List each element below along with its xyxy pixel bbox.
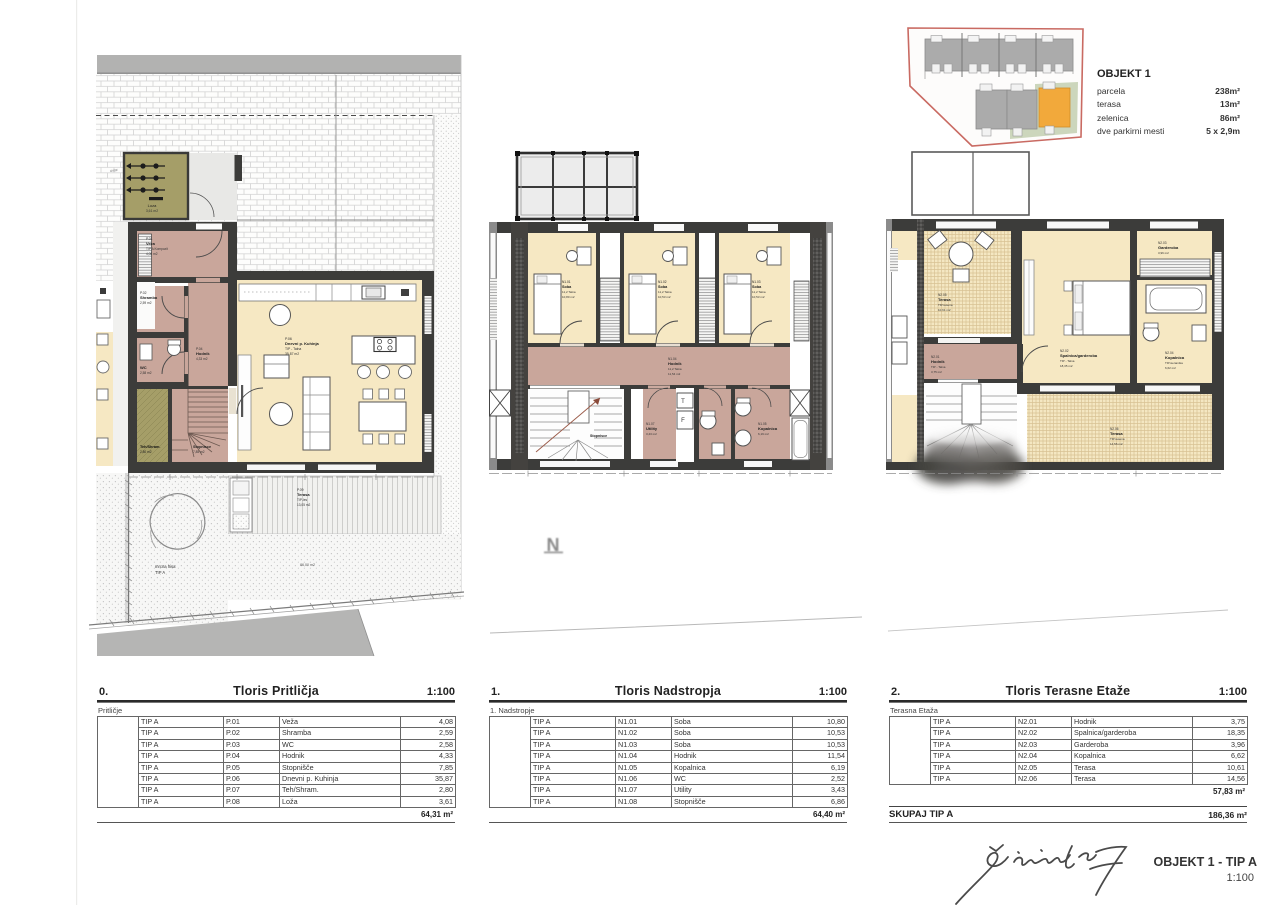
svg-text:T: T: [681, 399, 685, 405]
svg-text:TIP - Talna: TIP - Talna: [1060, 359, 1075, 363]
svg-text:F: F: [681, 418, 685, 424]
svg-text:3,75 m2: 3,75 m2: [931, 370, 942, 374]
svg-text:4,08 m2: 4,08 m2: [146, 252, 158, 256]
svg-text:N1.01: N1.01: [562, 280, 571, 284]
svg-text:14,56 m2: 14,56 m2: [1110, 442, 1123, 446]
svg-text:Teh/Shram.: Teh/Shram.: [140, 445, 160, 449]
svg-text:Soba: Soba: [658, 285, 668, 289]
svg-text:Kopalnica: Kopalnica: [758, 426, 778, 431]
svg-text:11,54 m2: 11,54 m2: [668, 372, 681, 376]
svg-text:Stopnisce: Stopnisce: [590, 434, 607, 438]
svg-text:6,19 m2: 6,19 m2: [758, 432, 769, 436]
svg-text:mrcna hisa: mrcna hisa: [155, 564, 176, 569]
svg-text:Hodnik: Hodnik: [668, 361, 682, 366]
svg-text:10,53 m2: 10,53 m2: [658, 295, 671, 299]
svg-text:Garderoba: Garderoba: [1158, 245, 1179, 250]
svg-text:4,33 m2: 4,33 m2: [196, 357, 208, 361]
svg-text:35,87 m2: 35,87 m2: [285, 352, 299, 356]
svg-text:2,58 m2: 2,58 m2: [140, 371, 152, 375]
svg-text:11,2 Talna: 11,2 Talna: [658, 290, 672, 294]
svg-text:Loza: Loza: [148, 203, 157, 208]
svg-text:Terasa: Terasa: [297, 492, 310, 497]
svg-text:3,96 m2: 3,96 m2: [1158, 251, 1169, 255]
svg-text:Spalnica/garderoba: Spalnica/garderoba: [1060, 353, 1098, 358]
svg-text:10,53 m2: 10,53 m2: [752, 295, 765, 299]
svg-text:TIP-les: TIP-les: [297, 498, 308, 502]
svg-text:2,59 m2: 2,59 m2: [140, 301, 152, 305]
svg-text:N1.03: N1.03: [752, 280, 761, 284]
svg-text:7,85 m2: 7,85 m2: [193, 450, 205, 454]
svg-text:N1.02: N1.02: [658, 280, 667, 284]
svg-text:Terasa: Terasa: [1110, 431, 1123, 436]
svg-text:Veza: Veza: [146, 241, 156, 246]
svg-text:WC: WC: [140, 365, 147, 370]
svg-text:86,00 m2: 86,00 m2: [300, 563, 315, 567]
svg-text:11,2 Talna: 11,2 Talna: [668, 367, 682, 371]
svg-text:11,2 Talna: 11,2 Talna: [562, 290, 576, 294]
svg-text:3,61 m2: 3,61 m2: [146, 209, 158, 213]
svg-text:TIP A: TIP A: [155, 570, 165, 575]
svg-text:TIP-keramika: TIP-keramika: [1165, 361, 1183, 365]
svg-text:6,62 m2: 6,62 m2: [1165, 366, 1176, 370]
svg-text:13,05 m2: 13,05 m2: [297, 503, 311, 507]
svg-text:18,35 m2: 18,35 m2: [1060, 364, 1073, 368]
svg-text:Hodnik: Hodnik: [196, 351, 210, 356]
svg-text:TIP - Talna: TIP - Talna: [285, 347, 301, 351]
svg-text:TIP - Talna: TIP - Talna: [931, 365, 946, 369]
svg-text:Soba: Soba: [562, 285, 572, 289]
svg-text:11,2 Talna: 11,2 Talna: [752, 290, 766, 294]
svg-text:10,61 m2: 10,61 m2: [938, 308, 951, 312]
svg-text:TIP-lesena: TIP-lesena: [938, 303, 953, 307]
svg-text:TIP-lesena: TIP-lesena: [1110, 437, 1125, 441]
svg-text:Soba: Soba: [752, 285, 762, 289]
svg-text:Terasa: Terasa: [938, 297, 951, 302]
svg-text:10,80 m2: 10,80 m2: [562, 295, 575, 299]
svg-text:TIP A Kompozit: TIP A Kompozit: [146, 247, 168, 251]
svg-text:Utility: Utility: [646, 426, 658, 431]
svg-text:3,43 m2: 3,43 m2: [646, 432, 657, 436]
svg-text:Shramba: Shramba: [140, 295, 158, 300]
svg-text:Kopalnica: Kopalnica: [1165, 355, 1185, 360]
svg-text:2,80 m2: 2,80 m2: [140, 450, 152, 454]
svg-text:Dnevni p. Kuhinja: Dnevni p. Kuhinja: [285, 341, 320, 346]
svg-text:Stopnisce: Stopnisce: [193, 445, 211, 449]
svg-text:Hodnik: Hodnik: [931, 359, 945, 364]
